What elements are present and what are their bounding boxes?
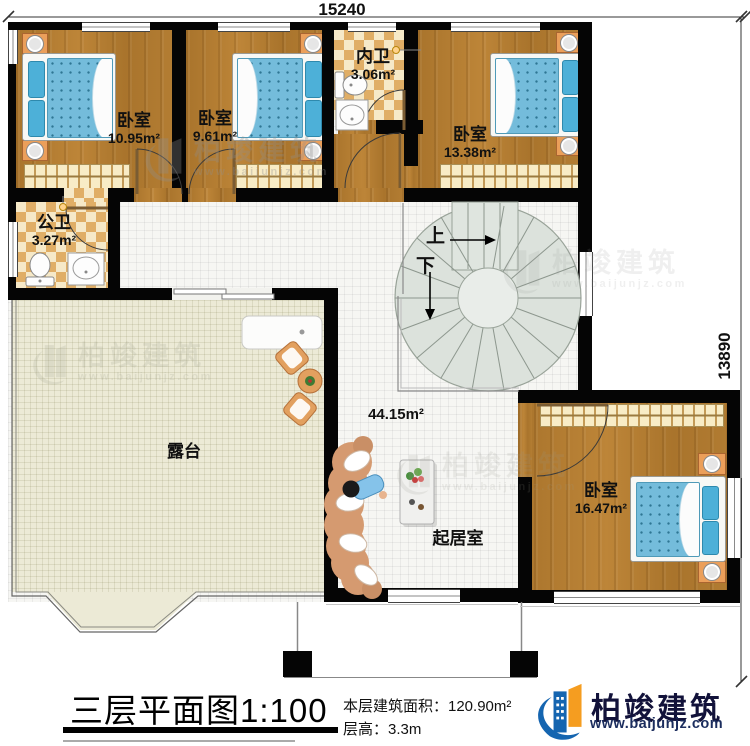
pillow [305,61,322,98]
room-label-living-room: 起居室 [433,530,484,548]
room-label-terrace: 露台 [167,443,201,461]
lamp-icon [305,36,321,52]
pillow [702,486,719,520]
window-bedroom3-top [451,22,540,32]
window-publicbath-left [8,222,18,277]
window-stair-right [579,252,593,316]
door-opening-bed3 [404,166,418,188]
pillow [28,100,45,137]
wardrobe-bedroom1 [24,164,130,189]
title-underline-thick [63,727,338,733]
wardrobe-bedroom2 [236,164,326,189]
pillar [510,651,538,677]
sliding-door-opening-terrace [172,288,272,300]
wall-bed4-top [518,390,740,403]
nightstand [22,140,48,161]
lamp-icon [305,143,321,159]
wall-innerbath-bed3 [404,30,418,134]
door-opening-vestibule [338,188,404,202]
dimension-right: 13890 [715,332,735,379]
door-opening-innerbath [338,120,376,134]
wardrobe-bedroom4 [540,404,724,427]
mattress [495,58,559,134]
window-bedroom2-top [218,22,290,32]
room-label-inner-bath: 内卫 3.06m² [351,48,395,82]
window-bedroom1-top [82,22,150,32]
lamp-icon [561,35,577,51]
plan-title: 三层平面图1:100 [70,684,328,732]
room-label-bedroom4: 卧室 16.47m² [575,482,627,516]
pillar [283,651,312,677]
nightstand [22,33,48,54]
brand-website: www.baijunjz.com [590,716,723,732]
stairs-up-label: 上 [426,221,445,248]
wall-corridor-terrace-a [8,288,172,300]
wall-right-upper [578,22,592,390]
window-bedroom4-right [727,478,742,558]
wall-terrace-living [324,288,338,595]
dimension-top: 15240 [318,0,365,20]
door-opening-bedroom1 [134,188,182,202]
room-label-bedroom2: 卧室 9.61m² [193,110,237,144]
sheet-fold [495,58,516,134]
wall-bed2-innerbath [322,30,334,188]
bed-bedroom4 [630,476,726,562]
pillow [562,97,579,132]
floor-height-text: 层高：3.3m [343,718,421,739]
room-label-public-bath: 公卫 3.27m² [32,214,76,248]
room-label-bedroom1: 卧室 10.95m² [108,112,160,146]
wall-publicbath-right [108,202,120,300]
living-room-area-label: 44.15m² [368,406,424,423]
floor-area-text: 本层建筑面积：120.90m² [343,695,511,716]
pillow [305,100,322,137]
brand-logo-icon [533,682,589,740]
bed-bedroom2 [232,53,326,141]
mattress [237,58,303,138]
bed-bedroom3 [490,53,584,137]
wall-bed4-left [518,477,532,603]
pillow [702,521,719,555]
window-innerbath-top [348,22,396,32]
nightstand [698,453,726,475]
lamp-icon [704,456,720,472]
title-underline-thin [63,740,295,742]
sheet-fold [679,482,700,557]
nightstand [698,561,726,583]
wall-innerbath-bottom [376,120,423,134]
mattress [47,58,113,138]
floor-plan-canvas: 卧室 10.95m² 卧室 9.61m² 内卫 3.06m² 卧室 13.38m… [0,0,750,746]
window-bedroom4-bottom [554,591,700,604]
floor-vestibule [334,134,404,188]
wall-vestibule-bed3 [404,134,418,166]
door-opening-bedroom4 [518,403,532,477]
pillow [28,61,45,98]
wall-bed1-bed2 [172,30,186,188]
wardrobe-bedroom3 [440,164,580,189]
bed-bedroom1 [22,53,116,141]
door-opening-bedroom2 [188,188,236,202]
stairs-down-label: 下 [416,251,435,278]
lamp-icon [561,138,577,154]
lamp-icon [704,564,720,580]
window-living-bottom [388,589,460,603]
window-bedroom1-left [8,30,18,64]
mattress [636,482,700,557]
door-opening-publicbath [64,188,108,202]
lamp-icon [27,36,43,52]
lamp-icon [27,143,43,159]
sheet-fold [237,58,258,138]
pillow [562,60,579,95]
room-label-bedroom3: 卧室 13.38m² [444,126,496,160]
